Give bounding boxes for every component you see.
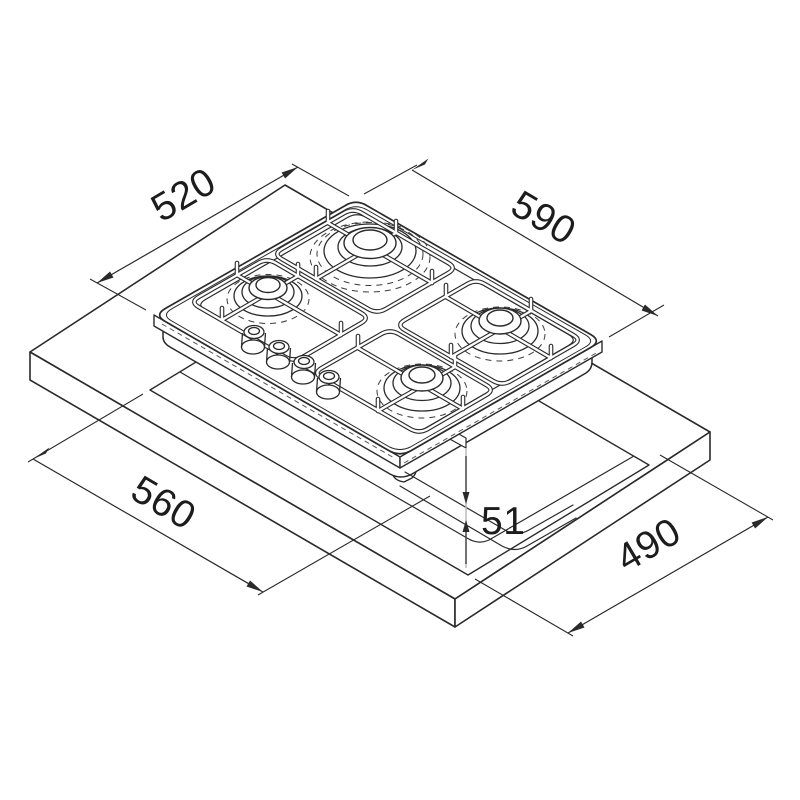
burner-large-cap-top — [353, 230, 387, 250]
burner-right-cap-top — [487, 310, 513, 326]
hob-installation-diagram: 520 590 560 490 — [0, 0, 800, 800]
burner-aux-cap-top — [256, 278, 280, 293]
burner-front-cap-top — [409, 367, 435, 383]
installation-diagram-page: 520 590 560 490 — [0, 0, 800, 800]
dim-label-51: 51 — [481, 500, 525, 543]
